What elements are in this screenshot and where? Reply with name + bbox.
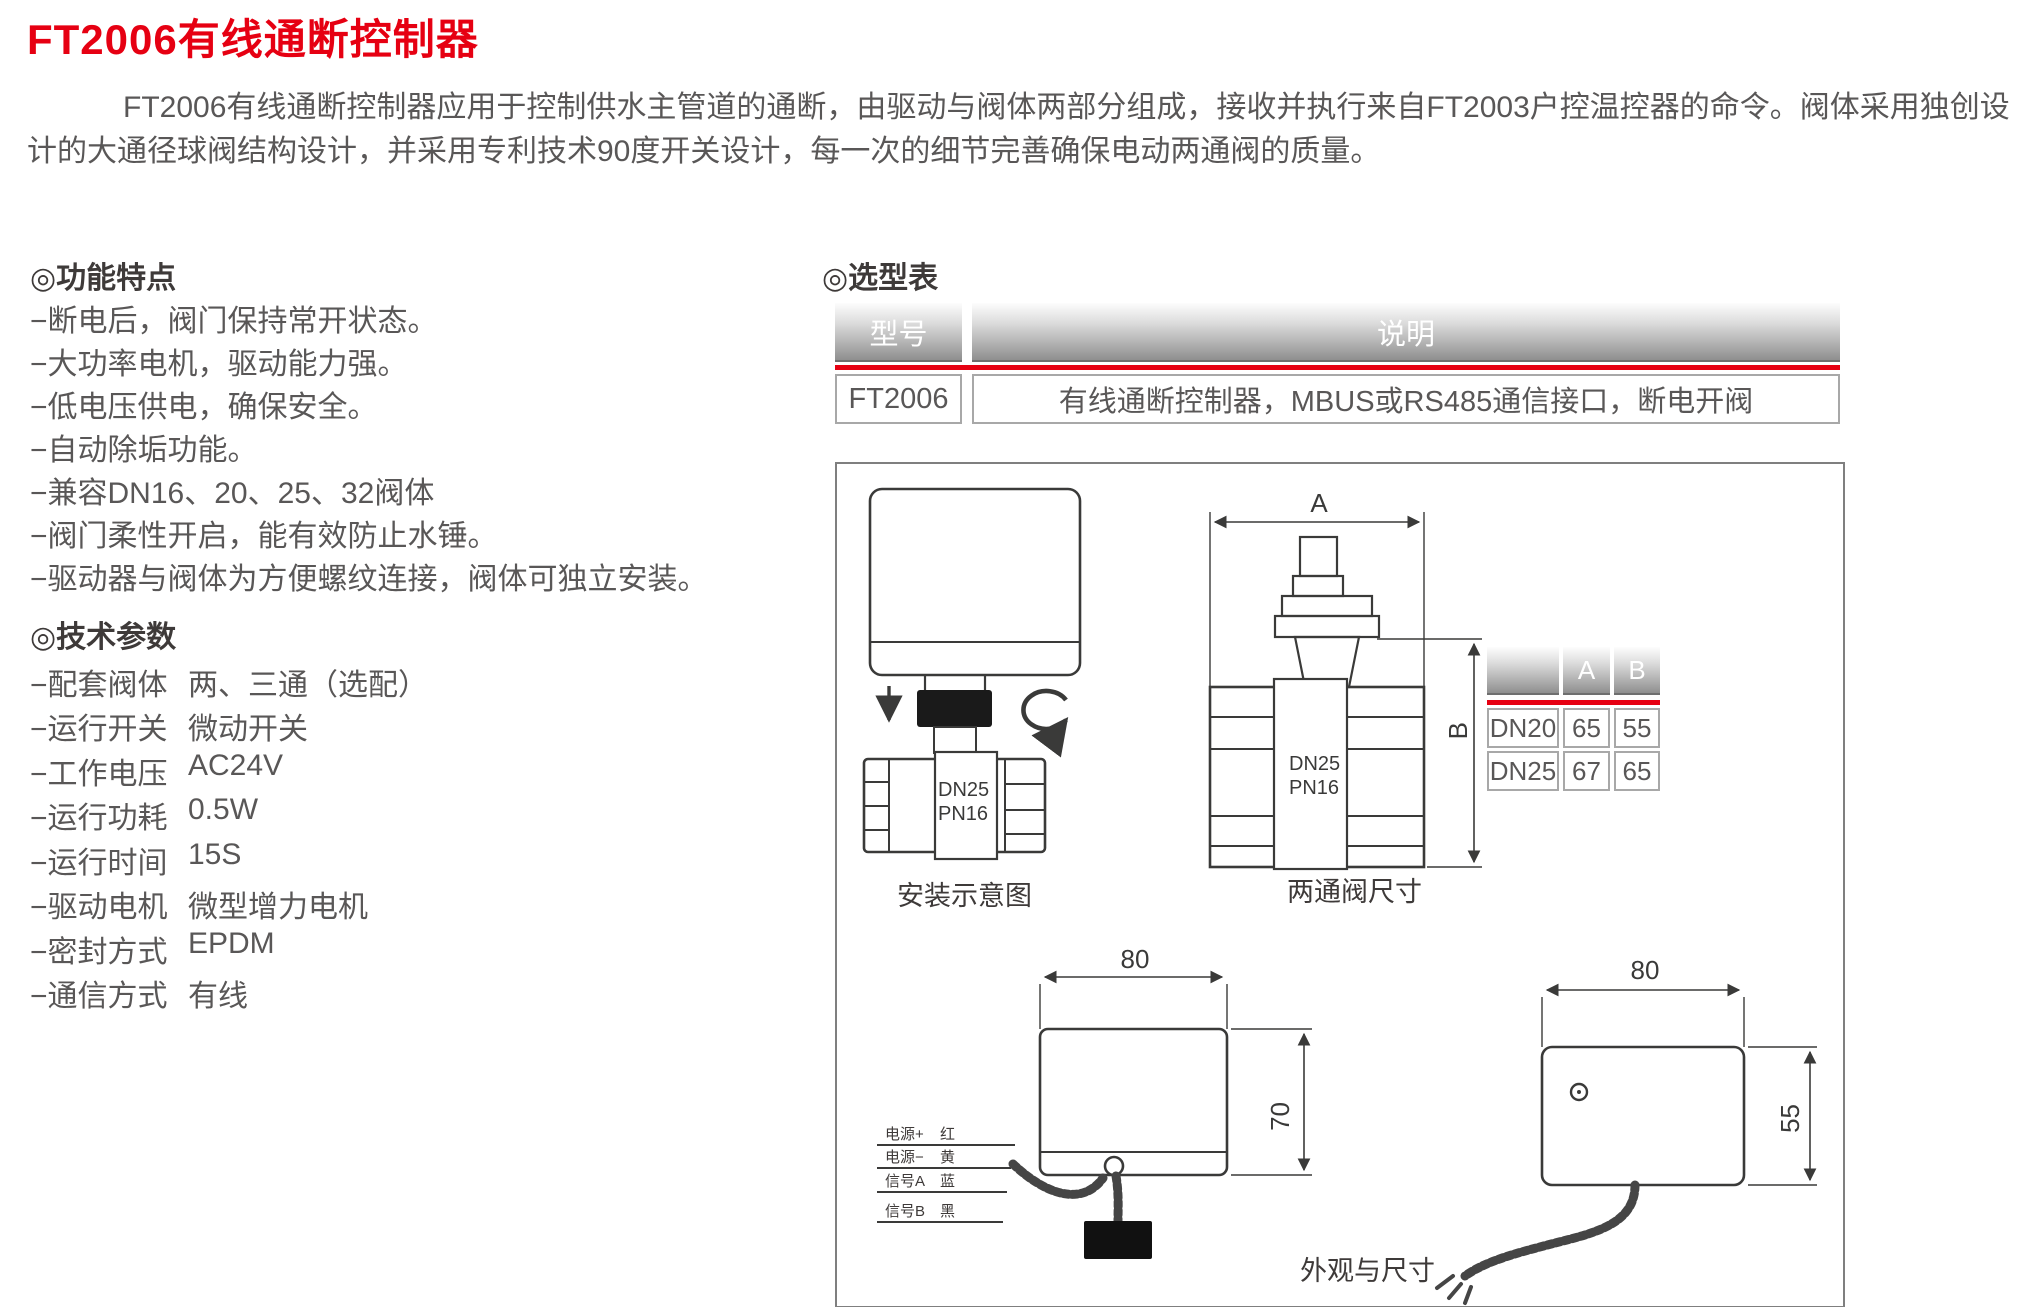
spec-label: −运行开关 — [30, 713, 168, 746]
wire-color: 红 — [940, 1123, 955, 1144]
selection-table: 型号 说明 FT2006 有线通断控制器，MBUS或RS485通信接口，断电开阀 — [835, 303, 1840, 424]
size-table-col-b: B — [1614, 647, 1660, 695]
spec-label: −通信方式 — [30, 980, 168, 1013]
size-cell: 65 — [1563, 708, 1610, 748]
spec-row: −配套阀体 两、三通（选配） — [30, 660, 168, 704]
spec-value: 两、三通（选配） — [188, 660, 428, 704]
feature-item: −断电后，阀门保持常开状态。 — [30, 296, 438, 340]
spec-row: −运行功耗 0.5W — [30, 793, 168, 837]
wire-name: 电源− — [885, 1146, 924, 1167]
size-table-col-a: A — [1563, 647, 1610, 695]
table-row: DN25 67 65 — [1487, 751, 1660, 791]
feature-item: −阀门柔性开启，能有效防止水锤。 — [30, 511, 498, 555]
intro-paragraph: FT2006有线通断控制器应用于控制供水主管道的通断，由驱动与阀体两部分组成，接… — [27, 86, 2012, 174]
size-table: A B DN20 65 55 DN25 67 65 — [1487, 647, 1660, 791]
front-view-caption: 外观与尺寸 — [1300, 1249, 1435, 1288]
valve-dims-caption: 两通阀尺寸 — [1287, 870, 1422, 909]
table-row: FT2006 有线通断控制器，MBUS或RS485通信接口，断电开阀 — [835, 374, 1840, 424]
specs-heading: ◎技术参数 — [30, 612, 176, 656]
spec-row: −运行开关 微动开关 — [30, 704, 168, 748]
wire-color: 黑 — [940, 1200, 955, 1221]
feature-item: −大功率电机，驱动能力强。 — [30, 339, 408, 383]
valve-dn: DN25 — [938, 778, 989, 802]
selection-table-header-row: 型号 说明 — [835, 303, 1840, 362]
spec-value: EPDM — [188, 927, 275, 961]
spec-label: −运行时间 — [30, 847, 168, 880]
table-row: DN20 65 55 — [1487, 708, 1660, 748]
red-divider — [835, 365, 1840, 370]
wire-name: 信号B — [885, 1200, 925, 1221]
feature-item: −低电压供电，确保安全。 — [30, 382, 378, 426]
spec-label: −配套阀体 — [30, 669, 168, 702]
front-width-dim: 80 — [1605, 955, 1685, 986]
spec-row: −密封方式 EPDM — [30, 927, 168, 971]
spec-value: 微动开关 — [188, 704, 308, 748]
valve-size-label: DN25 PN16 — [938, 778, 989, 826]
page-title: FT2006有线通断控制器 — [27, 6, 479, 67]
spec-value: 微型增力电机 — [188, 882, 368, 926]
wire-label: 信号A 蓝 — [885, 1170, 955, 1191]
spec-label: −运行功耗 — [30, 802, 168, 835]
front-height-dim: 55 — [1775, 1104, 1806, 1133]
datasheet-page: FT2006有线通断控制器 FT2006有线通断控制器应用于控制供水主管道的通断… — [0, 0, 2035, 1307]
wire-label: 电源+ 红 — [885, 1123, 955, 1144]
size-cell: DN25 — [1487, 751, 1559, 791]
spec-value: 0.5W — [188, 793, 258, 827]
red-divider — [1487, 700, 1660, 705]
column-header-description: 说明 — [972, 303, 1840, 362]
spec-label: −密封方式 — [30, 936, 168, 969]
wire-color: 蓝 — [940, 1170, 955, 1191]
valve-pn: PN16 — [938, 802, 989, 826]
dim-b-label: B — [1443, 722, 1474, 739]
spec-label: −驱动电机 — [30, 891, 168, 924]
selection-table-heading: ◎选型表 — [822, 253, 938, 297]
side-width-dim: 80 — [1095, 944, 1175, 975]
feature-item: −自动除垢功能。 — [30, 425, 258, 469]
dim-a-label: A — [1289, 488, 1349, 519]
spec-row: −驱动电机 微型增力电机 — [30, 882, 168, 926]
valve-dn: DN25 — [1289, 752, 1340, 776]
diagram-panel: DN25 PN16 安装示意图 A B DN25 PN16 两通阀尺寸 A B … — [835, 462, 1845, 1307]
feature-item: −驱动器与阀体为方便螺纹连接，阀体可独立安装。 — [30, 554, 708, 598]
valve-size-label: DN25 PN16 — [1289, 752, 1340, 800]
size-table-header-row: A B — [1487, 647, 1660, 695]
install-caption: 安装示意图 — [897, 874, 1032, 913]
wire-label: 信号B 黑 — [885, 1200, 955, 1221]
wire-name: 信号A — [885, 1170, 925, 1191]
wire-color: 黄 — [940, 1146, 955, 1167]
features-heading: ◎功能特点 — [30, 253, 176, 297]
spec-value: 有线 — [188, 971, 248, 1015]
model-cell: FT2006 — [835, 374, 962, 424]
spec-row: −运行时间 15S — [30, 838, 168, 882]
column-header-model: 型号 — [835, 303, 962, 362]
spec-value: AC24V — [188, 749, 283, 783]
wire-label: 电源− 黄 — [885, 1146, 955, 1167]
size-cell: 55 — [1614, 708, 1660, 748]
side-height-dim: 70 — [1265, 1102, 1296, 1131]
size-cell: 67 — [1563, 751, 1610, 791]
spec-value: 15S — [188, 838, 241, 872]
description-cell: 有线通断控制器，MBUS或RS485通信接口，断电开阀 — [972, 374, 1840, 424]
size-cell: DN20 — [1487, 708, 1559, 748]
size-table-corner-cell — [1487, 647, 1559, 695]
spec-row: −工作电压 AC24V — [30, 749, 168, 793]
spec-label: −工作电压 — [30, 758, 168, 791]
feature-item: −兼容DN16、20、25、32阀体 — [30, 468, 434, 512]
valve-pn: PN16 — [1289, 776, 1340, 800]
wire-name: 电源+ — [885, 1123, 924, 1144]
spec-row: −通信方式 有线 — [30, 971, 168, 1015]
size-cell: 65 — [1614, 751, 1660, 791]
